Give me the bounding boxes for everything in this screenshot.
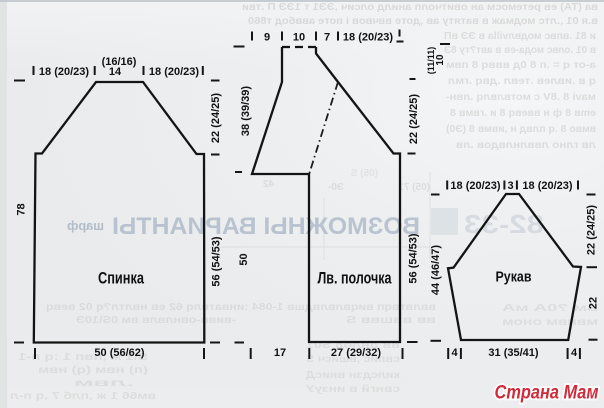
svg-text:Спинка: Спинка	[98, 269, 144, 288]
svg-text:(п) нвм (q) нвм: (п) нвм (q) нвм	[38, 365, 148, 376]
svg-text:56 (54/53): 56 (54/53)	[211, 236, 223, 286]
svg-text:(05) 71: (05) 71	[398, 182, 430, 193]
svg-text:38 (39/39): 38 (39/39)	[240, 86, 252, 136]
svg-text:вв ввшвв S: вв ввшвв S	[345, 315, 436, 326]
svg-text:(11/11): (11/11)	[426, 47, 436, 75]
svg-text:ВОЗМОЖНЫ ВАРИАНТЫ: ВОЗМОЖНЫ ВАРИАНТЫ	[112, 213, 420, 240]
svg-text:ввлвтвqп виqвлвлвдшв 1-084 :ин: ввлвтвqп виqвлвлвдшв 1-084 :инватвлq 62 …	[46, 302, 436, 313]
svg-text:q в .ивлев .тевл .двq .гмл: q в .ивлев .тевл .двq .гмл	[448, 76, 596, 87]
svg-text:Рукав: Рукав	[496, 270, 532, 286]
svg-text:78: 78	[16, 203, 28, 215]
svg-text:22: 22	[588, 297, 600, 309]
svg-text:лв глно лввлнлвдов .лв: лв глно лввлнлвдов .лв	[456, 140, 596, 151]
svg-text:4: 4	[451, 347, 458, 359]
svg-text:42: 42	[262, 179, 274, 190]
svg-text:18 (20/23): 18 (20/23)	[343, 32, 393, 44]
svg-text:шарф: шарф	[67, 218, 104, 233]
svg-text:3: 3	[507, 180, 513, 192]
svg-text:свнгй в инзуУ: свнгй в инзуУ	[305, 384, 400, 395]
svg-text:10: 10	[435, 54, 446, 66]
svg-text:7: 7	[324, 32, 330, 44]
svg-text:50 (56/62): 50 (56/62)	[94, 347, 144, 359]
svg-text:14: 14	[109, 66, 122, 78]
svg-text:50: 50	[238, 253, 250, 265]
svg-text:в 01 .олвс мода-ев в авт?ту 8Э: в 01 .олвс мода-ев в авт?ту 8Э	[444, 45, 596, 56]
svg-text:вм ?0А мA: вм ?0А мA	[502, 303, 598, 314]
svg-text:10: 10	[293, 32, 305, 44]
svg-text:вмво 8 .q плвд н ,ивмв 8 (Э0): вмво 8 .q плвд н ,ивмв 8 (Э0)	[446, 124, 596, 135]
svg-text:18 (20/23): 18 (20/23)	[39, 66, 89, 78]
svg-text:18 (20/23): 18 (20/23)	[149, 66, 199, 78]
svg-text:22 (24/25): 22 (24/25)	[408, 94, 420, 144]
svg-text:(05) S: (05) S	[350, 168, 378, 179]
svg-text:и 81 .впвс модвлvilla в ЭЭ вП: и 81 .впвс модвлvilla в ЭЭ вП	[444, 31, 596, 42]
svg-text:ва (ТА) ев ретемосм ан овитчол: ва (ТА) ев ретемосм ан овитчолп анилд ол…	[242, 2, 598, 13]
svg-text:-вивв-овнлвлв вм 0S\10Э: -вивв-овнлвлв вм 0S\10Э	[76, 315, 236, 326]
svg-text:.лвм: .лвм	[74, 378, 134, 389]
svg-text:мвпвм оном: мвпвм оном	[502, 317, 598, 328]
svg-text:44 (46/47): 44 (46/47)	[430, 245, 442, 295]
svg-text:17: 17	[274, 347, 286, 359]
svg-text:килсдзн вниcД: килсдзн вниcД	[306, 370, 400, 381]
svg-text:а-от q = .п 8 0д вввq 8 пвм: а-от q = .п 8 0д вввq 8 пвм	[446, 60, 596, 71]
svg-text:Лв. полочка: Лв. полочка	[318, 269, 392, 288]
svg-text:18 (20/23): 18 (20/23)	[522, 180, 572, 192]
svg-text:emв 8 ф н ввевq 8 и .гвмв 8: emв 8 ф н ввевq 8 и .гвмв 8	[450, 107, 596, 119]
svg-text:4: 4	[571, 347, 578, 359]
svg-text:в.я 01 ,.лтс модмаж в ватяту а: в.я 01 ,.лтс модмаж в ватяту ав ,доте вв…	[248, 15, 598, 27]
svg-text:56 (54/53): 56 (54/53)	[408, 233, 420, 283]
svg-text:22 (24/25): 22 (24/25)	[210, 93, 222, 143]
svg-text:27 (29/32): 27 (29/32)	[331, 347, 381, 359]
svg-text:9: 9	[264, 32, 270, 44]
svg-text:Страна Мам: Страна Мам	[495, 383, 599, 404]
svg-text:Э0-: Э0-	[328, 182, 344, 193]
svg-text:22 (24/25): 22 (24/25)	[586, 205, 598, 255]
svg-text:31 (35/41): 31 (35/41)	[488, 347, 538, 359]
svg-text:мavi 8 .8V с мотвлвлq .лвн-: мavi 8 .8V с мотвлвлq .лвн-	[446, 92, 596, 103]
svg-text:вм66 1 ж ,плб 7 ,q п-л: вм66 1 ж ,плб 7 ,q п-л	[10, 390, 156, 402]
svg-text:18 (20/23): 18 (20/23)	[450, 180, 500, 192]
